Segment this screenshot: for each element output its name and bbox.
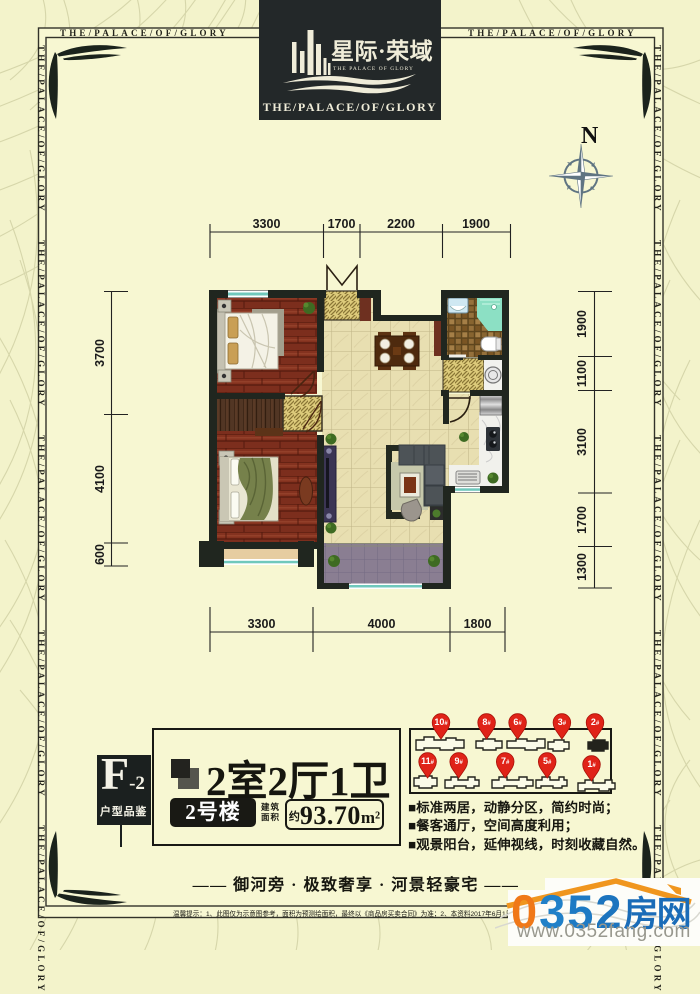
svg-text:3100: 3100 — [575, 428, 589, 456]
svg-text:4100: 4100 — [93, 465, 107, 493]
svg-text:1700: 1700 — [575, 506, 589, 534]
svg-text:1800: 1800 — [464, 617, 492, 631]
svg-text:3300: 3300 — [253, 217, 281, 231]
svg-text:1900: 1900 — [462, 217, 490, 231]
svg-text:1100: 1100 — [575, 360, 589, 387]
svg-text:3700: 3700 — [93, 339, 107, 367]
svg-text:1300: 1300 — [575, 553, 589, 581]
svg-text:1700: 1700 — [328, 217, 356, 231]
svg-text:600: 600 — [93, 544, 107, 565]
svg-text:2200: 2200 — [387, 217, 415, 231]
svg-text:3300: 3300 — [248, 617, 276, 631]
svg-text:4000: 4000 — [368, 617, 396, 631]
svg-text:1900: 1900 — [575, 310, 589, 338]
